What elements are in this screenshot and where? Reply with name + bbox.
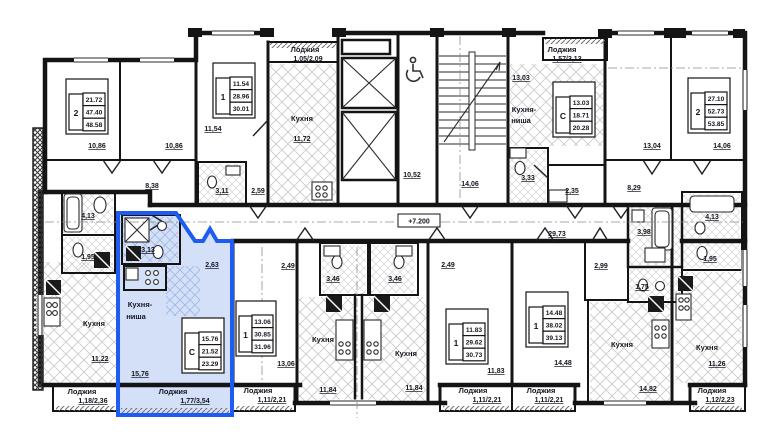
table-value: 52.73	[708, 109, 725, 116]
room-name: Кухня-	[512, 105, 537, 114]
table-value: 31.96	[254, 344, 271, 351]
rooms-count: 2	[74, 108, 79, 118]
area-label: 1,12/2,23	[705, 397, 734, 404]
elevators	[342, 40, 396, 180]
room-name: Кухня	[312, 335, 334, 344]
room-name: Лоджия	[698, 386, 727, 395]
room-name: Кухня-	[128, 300, 153, 309]
room-name: Лоджия	[159, 387, 188, 396]
room-name: Лоджия	[68, 387, 97, 396]
level-mark: +7.200	[398, 214, 440, 227]
table-value: 48.58	[86, 122, 103, 129]
area-label: 11,26	[708, 361, 725, 368]
area-label: 11,84	[319, 387, 336, 394]
table-value: 13.06	[254, 319, 271, 326]
table-value: 47.40	[86, 110, 103, 117]
rooms-count: С	[189, 347, 195, 357]
table-value: 28.96	[233, 94, 250, 101]
rooms-count: 1	[454, 338, 459, 348]
area-label: 1,05/2,09	[293, 56, 322, 63]
area-label: 11,54	[204, 126, 221, 133]
room-name: ниша	[126, 312, 146, 321]
area-label: 3,46	[388, 276, 402, 283]
area-label: 1,11/2,21	[535, 397, 564, 404]
table-value: 18.71	[573, 113, 590, 120]
area-label: 11,72	[293, 136, 310, 143]
apartment-info-table[interactable]: 2 21.72 47.40 48.58	[66, 79, 108, 134]
area-label: 2,59	[251, 188, 265, 195]
table-value: 15.76	[202, 336, 219, 343]
room-name: ниша	[511, 116, 531, 125]
area-label: 3,11	[215, 188, 228, 195]
table-value: 21.72	[86, 97, 103, 104]
area-label: 3,46	[326, 276, 340, 283]
rooms-count: 2	[696, 107, 701, 117]
table-value: 11.83	[466, 327, 482, 334]
area-label: 1,95	[703, 256, 717, 263]
area-label: 1,11/2,21	[473, 397, 502, 404]
room-name: Лоджия	[291, 45, 320, 54]
table-value: 20.28	[573, 125, 590, 132]
area-label: 10,86	[165, 143, 183, 150]
area-label: 1,77/3,54	[180, 398, 209, 405]
area-label: 2,99	[594, 263, 608, 270]
area-label: 4,13	[705, 214, 719, 221]
table-value: 29.62	[466, 340, 483, 347]
rooms-count: С	[560, 111, 566, 121]
area-label: 13,04	[643, 143, 661, 150]
apartment-info-table[interactable]: 1 13.06 30.85 31.96	[236, 301, 276, 356]
room-name: Лоджия	[459, 386, 488, 395]
apartment-info-table[interactable]: С 15.76 21.52 23.29	[182, 318, 224, 373]
area-label: 3,98	[637, 229, 651, 236]
area-label: 11,84	[405, 385, 422, 392]
rooms-count: 1	[243, 330, 248, 340]
apartment-info-table[interactable]: С 13.03 18.71 20.28	[553, 82, 595, 137]
area-label: 8,29	[627, 185, 641, 192]
wheelchair-icon	[407, 57, 423, 81]
area-label: 1,57/3,13	[552, 56, 581, 63]
area-label: 3,33	[521, 175, 535, 182]
apartment-info-table[interactable]: 2 27.10 52.73 53.85	[688, 78, 730, 133]
area-label: 29,73	[548, 231, 566, 238]
table-value: 14.48	[546, 310, 563, 317]
area-label: 11,83	[487, 368, 504, 375]
area-label: 2,35	[565, 188, 579, 195]
room-name: Кухня	[291, 114, 313, 123]
area-label: 1,95	[81, 254, 95, 261]
area-label: 8,38	[145, 183, 159, 190]
table-value: 30.73	[466, 352, 483, 359]
stairs	[439, 52, 506, 150]
table-value: 30.01	[233, 106, 250, 113]
area-label: 14,48	[554, 360, 572, 367]
area-label: 13,06	[277, 361, 295, 368]
room-name: Кухня	[395, 349, 417, 358]
room-name: Кухня	[611, 340, 633, 349]
area-label: 14,06	[713, 143, 731, 150]
apartment-info-table[interactable]: 1 11.54 28.96 30.01	[213, 63, 255, 118]
area-label: 10,86	[88, 143, 106, 150]
room-name: Кухня	[83, 319, 105, 328]
table-value: 13.03	[573, 100, 590, 107]
floor-plan-canvas: +7.200 10,86 10,86 8,38 4,13 1,95 11,54 …	[0, 0, 758, 447]
area-label: 2,49	[281, 263, 295, 270]
table-value: 23.29	[202, 361, 219, 368]
table-value: 53.85	[708, 121, 725, 128]
highlight-niche-floor	[166, 266, 200, 316]
area-label: 10,52	[403, 172, 421, 179]
area-label: 3,13	[141, 247, 155, 254]
area-label: 2,63	[205, 262, 219, 269]
level-mark-text: +7.200	[408, 219, 430, 226]
apartment-info-table[interactable]: 1 11.83 29.62 30.73	[446, 309, 488, 364]
area-label: 4,13	[81, 213, 95, 220]
area-label: 1,18/2,36	[78, 398, 107, 405]
area-label: 11,22	[91, 356, 108, 363]
table-value: 30.85	[254, 332, 271, 339]
table-value: 27.10	[708, 96, 725, 103]
table-value: 21.52	[202, 349, 219, 356]
area-label: 14,06	[461, 181, 479, 188]
area-label: 14,82	[639, 386, 657, 393]
room-name: Кухня	[696, 343, 718, 352]
rooms-count: 1	[534, 321, 539, 331]
room-name: Лоджия	[527, 386, 556, 395]
area-label: 13,03	[512, 75, 530, 82]
area-label: 1,75	[635, 284, 649, 291]
room-name: Лоджия	[244, 386, 273, 395]
table-value: 38.02	[546, 323, 563, 330]
table-value: 39.13	[546, 335, 563, 342]
rooms-count: 1	[221, 92, 226, 102]
table-value: 11.54	[233, 81, 249, 88]
room-name: Лоджия	[548, 45, 577, 54]
floor-plan: +7.200 10,86 10,86 8,38 4,13 1,95 11,54 …	[0, 0, 758, 447]
area-label: 2,49	[441, 262, 455, 269]
area-label: 15,76	[131, 371, 149, 378]
apartment-info-table[interactable]: 1 14.48 38.02 39.13	[526, 292, 568, 347]
area-label: 1,11/2,21	[258, 397, 287, 404]
